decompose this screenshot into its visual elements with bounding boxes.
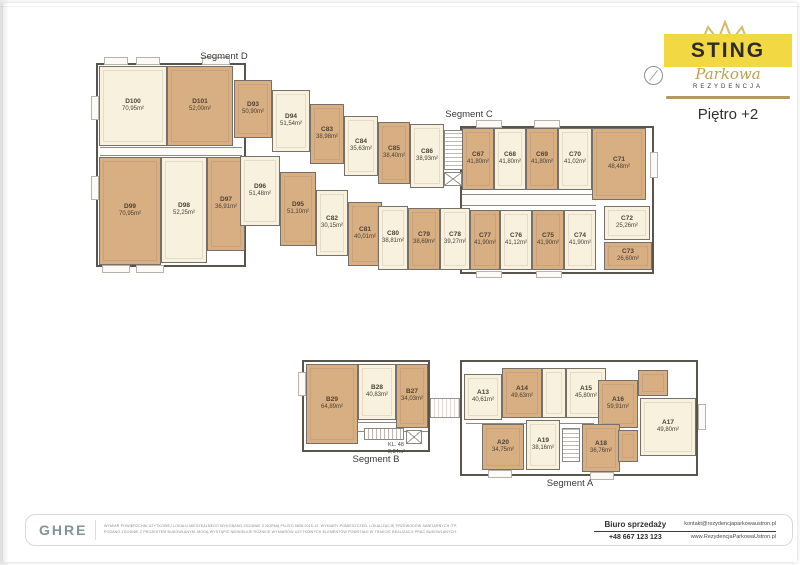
balcony [476,271,502,278]
unit-c84: C8435,63m² [344,116,378,176]
contact-block: Biuro sprzedaży kontakt@rezydencjaparkow… [594,520,776,541]
unit-id: A20 [497,439,509,447]
unit-area: 39,27m² [444,239,466,247]
unit-area: 49,63m² [511,393,533,401]
unit-area: 50,90m² [242,109,264,117]
unit-d96: D9651,48m² [240,156,280,226]
brand-script-name: Parkowa [664,65,792,83]
unit-id: C68 [504,151,516,159]
unit-c82: C8230,15m² [316,190,348,256]
unit-area: 38,93m² [416,156,438,164]
staircase [364,428,404,440]
disclaimer-text: WYMIAR POWIERZCHNI UŻYTKOWEJ LOKALU MIES… [104,524,398,536]
unit-area: 41,90m² [474,240,496,248]
unit-a17: A1749,80m² [640,398,696,456]
unit-c78: C7839,27m² [440,208,470,270]
unit-c70: C7041,02m² [558,128,592,190]
unit-id: B28 [371,384,383,392]
unit-c74: C7441,90m² [564,210,596,270]
unit-a19: A1938,16m² [526,420,560,470]
unit-area: 70,95m² [119,211,141,219]
unit-id: C69 [536,151,548,159]
elevator [406,430,422,444]
unit-area: 40,61m² [472,397,494,405]
unit-id: C79 [418,231,430,239]
scan-shadow-edge [0,0,9,565]
unit-id: D94 [285,113,297,121]
segment-d-label: Segment D [188,51,260,62]
unit-d94: D9451,54m² [272,90,310,152]
contact-phone: +48 667 123 123 [594,534,676,541]
unit-id: C81 [359,226,371,234]
balcony [488,470,512,478]
footer-bar: GHRE WYMIAR POWIERZCHNI UŻYTKOWEJ LOKALU… [25,514,793,546]
contact-divider [594,531,776,532]
balcony [91,176,99,200]
unit-id: A17 [662,419,674,427]
unit-area: 36,91m² [215,204,237,212]
contact-email: kontakt@rezydencjaparkowaustron.pl [676,521,776,527]
unit-id: A15 [580,385,592,393]
unit-a14: A1449,63m² [502,368,542,418]
unit-id: D101 [192,98,208,106]
unit-area: 52,00m² [189,106,211,114]
agency-logo: GHRE [39,522,87,538]
unit-id: C84 [355,138,367,146]
unit-d98: D9852,25m² [161,157,207,263]
unit-id: D100 [125,98,141,106]
unit-a20: A2034,75m² [482,424,524,470]
unit-area-rooms [618,430,638,462]
staircase [444,130,464,170]
unit-area: 64,89m² [321,404,343,412]
unit-id: A16 [612,396,624,404]
unit-id: D98 [178,202,190,210]
unit-area: 38,98m² [316,134,338,142]
balcony [476,120,502,128]
unit-id: C74 [574,232,586,240]
unit-id: C75 [542,232,554,240]
unit-id: B29 [326,396,338,404]
balcony [91,96,99,120]
compass-needle [649,70,658,81]
disclaimer-line-2: PODANO ZGODNIE Z PROJEKTEM BUDOWLANYM. M… [104,530,398,536]
floor-label: Piętro +2 [664,106,792,123]
unit-c67: C6741,80m² [462,128,494,190]
scanned-floorplan-page: STING Parkowa REZYDENCJA Piętro +2 D1007… [0,0,800,565]
unit-area: 51,48m² [249,191,271,199]
sales-office-label: Biuro sprzedaży [594,520,676,529]
unit-area: 38,69m² [413,239,435,247]
unit-id: D93 [247,101,259,109]
segment-a-label: Segment A [534,478,606,489]
unit-area: 25,26m² [616,223,638,231]
unit-area: 41,12m² [505,240,527,248]
unit-area: 34,03m² [401,396,423,404]
unit-id: B27 [406,388,418,396]
unit-id: A18 [595,440,607,448]
unit-id: C76 [510,232,522,240]
unit-area: 41,80m² [499,159,521,167]
unit-id: C70 [569,151,581,159]
unit-d99: D9970,95m² [99,157,161,265]
stair-room-label: KL. 48 2,34m² [388,442,405,456]
unit-b28: B2840,83m² [358,364,396,420]
unit-area: 41,90m² [569,240,591,248]
unit-area: 41,80m² [467,159,489,167]
unit-id: C86 [421,148,433,156]
unit-id: C85 [388,145,400,153]
unit-area: 30,15m² [321,223,343,231]
compass-icon [644,66,663,85]
unit-id: D97 [220,196,232,204]
unit-area: 51,10m² [287,209,309,217]
unit-area: 38,81m² [382,238,404,246]
balcony [534,120,560,128]
unit-id: C80 [387,230,399,238]
unit-id: C83 [321,126,333,134]
unit-id: C77 [479,232,491,240]
unit-id: A13 [477,389,489,397]
unit-area: 48,48m² [608,164,630,172]
brand-block: STING Parkowa REZYDENCJA Piętro +2 [664,24,792,123]
unit-area: 36,76m² [590,448,612,456]
unit-c80: C8038,81m² [378,206,408,270]
unit-d93: D9350,90m² [234,80,272,138]
unit-id: C73 [622,248,634,256]
unit-c71: C7148,48m² [592,128,646,200]
unit-area: 40,83m² [366,392,388,400]
unit-a16: A1659,91m² [598,380,638,428]
unit-c72: C7225,26m² [604,206,650,240]
scan-top-line [0,6,800,7]
stair-room-area: 2,34m² [388,449,405,456]
unit-id: C82 [326,215,338,223]
unit-c68: C6841,80m² [494,128,526,190]
unit-c77: C7741,90m² [470,210,500,270]
unit-c79: C7938,69m² [408,208,440,270]
unit-area: 38,16m² [532,445,554,453]
unit-c81: C8140,01m² [348,202,382,266]
unit-area: 35,63m² [350,146,372,154]
stair-room-id: KL. 48 [388,442,405,449]
balcony [650,152,658,178]
corridor [100,147,242,156]
unit-area: 52,25m² [173,210,195,218]
staircase [562,428,580,462]
unit-id: C71 [613,156,625,164]
corridor [462,194,596,206]
balcony [136,57,160,65]
unit-a13: A1340,61m² [464,374,502,420]
unit-c76: C7641,12m² [500,210,532,270]
unit-b29: B2964,89m² [306,364,358,444]
unit-area-core [542,368,566,418]
unit-area: 49,80m² [657,427,679,435]
unit-c69: C6941,80m² [526,128,558,190]
unit-area: 34,75m² [492,447,514,455]
unit-c83: C8338,98m² [310,104,344,164]
unit-c73: C7326,60m² [604,242,652,270]
unit-b27: B2734,03m² [396,364,428,428]
unit-area: 59,91m² [607,404,629,412]
unit-c75: C7541,90m² [532,210,564,270]
balcony [698,404,706,430]
balcony [536,271,562,278]
unit-id: A19 [537,437,549,445]
connector-bridge [430,398,460,418]
unit-id: C67 [472,151,484,159]
balcony [104,57,128,65]
unit-area: 51,54m² [280,121,302,129]
unit-id: C78 [449,231,461,239]
gold-divider [666,96,790,99]
unit-c85: C8538,40m² [378,122,410,184]
balcony [136,265,164,273]
elevator [444,172,462,186]
unit-id: D96 [254,183,266,191]
balcony [102,265,130,273]
unit-id: C72 [621,215,633,223]
unit-area: 41,80m² [531,159,553,167]
unit-d101: D10152,00m² [167,66,233,146]
unit-id: D99 [124,203,136,211]
unit-c86: C8638,93m² [410,124,444,188]
balcony [298,372,306,396]
unit-d100: D10070,95m² [99,66,167,146]
unit-area-rooms [638,370,668,396]
unit-a18: A1836,76m² [582,424,620,472]
unit-area: 41,90m² [537,240,559,248]
unit-area: 70,95m² [122,106,144,114]
unit-id: A14 [516,385,528,393]
unit-area: 41,02m² [564,159,586,167]
unit-area: 26,60m² [617,256,639,264]
segment-c-label: Segment C [433,109,505,120]
contact-website: www.RezydencjaParkowaUstron.pl [676,534,776,540]
unit-area: 40,01m² [354,234,376,242]
brand-subtitle: REZYDENCJA [664,84,792,90]
brand-logo: STING [664,34,792,67]
unit-area: 45,80m² [575,393,597,401]
unit-area: 38,40m² [383,153,405,161]
unit-id: D95 [292,201,304,209]
footer-divider [95,520,96,540]
unit-d95: D9551,10m² [280,172,316,246]
